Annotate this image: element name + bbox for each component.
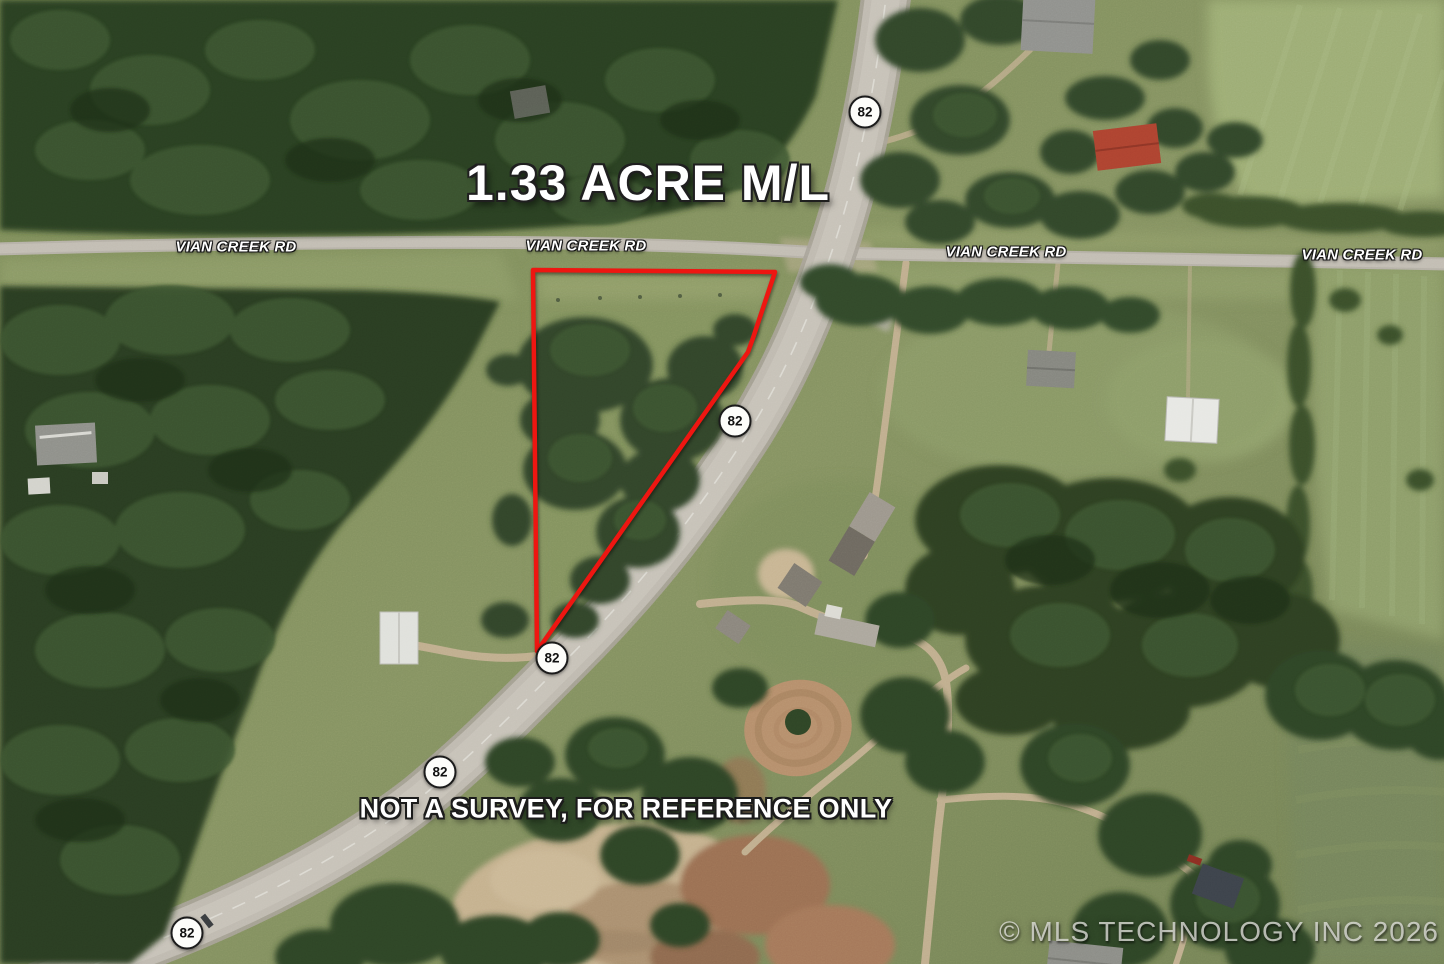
terrain-layer	[0, 0, 1444, 964]
photo-noise	[0, 0, 1444, 964]
satellite-map: 1.33 ACRE M/L NOT A SURVEY, FOR REFERENC…	[0, 0, 1444, 964]
